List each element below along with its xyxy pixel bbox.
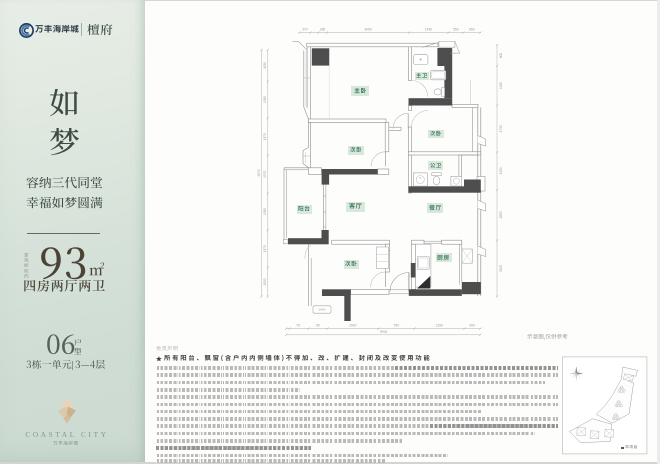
svg-text:1350: 1350: [263, 208, 267, 215]
svg-text:9070: 9070: [257, 169, 261, 176]
svg-text:285: 285: [320, 27, 326, 31]
svg-text:800: 800: [499, 53, 503, 59]
svg-text:1850: 1850: [499, 211, 503, 218]
svg-text:3050: 3050: [364, 27, 372, 31]
svg-text:1370: 1370: [263, 245, 267, 252]
svg-text:2150: 2150: [436, 324, 444, 328]
svg-text:1450: 1450: [425, 27, 433, 31]
svg-text:9700: 9700: [380, 330, 388, 334]
svg-text:650: 650: [469, 27, 475, 31]
svg-text:750: 750: [394, 324, 400, 328]
svg-text:1370: 1370: [263, 133, 267, 140]
svg-text:2500: 2500: [349, 324, 357, 328]
svg-text:1130: 1130: [263, 62, 267, 69]
svg-text:1450: 1450: [499, 82, 503, 89]
svg-text:95: 95: [316, 324, 320, 328]
svg-text:1370: 1370: [263, 171, 267, 178]
svg-text:COASTAL CITY: COASTAL CITY: [25, 431, 108, 439]
svg-text:900: 900: [469, 324, 475, 328]
svg-text:1350: 1350: [263, 96, 267, 103]
svg-text:550: 550: [453, 27, 459, 31]
svg-text:2100: 2100: [499, 265, 503, 272]
svg-text:1050: 1050: [263, 278, 267, 285]
svg-text:1750: 1750: [499, 125, 503, 132]
svg-text:1400: 1400: [499, 167, 503, 174]
svg-text:75: 75: [296, 324, 300, 328]
svg-text:370: 370: [302, 27, 308, 31]
